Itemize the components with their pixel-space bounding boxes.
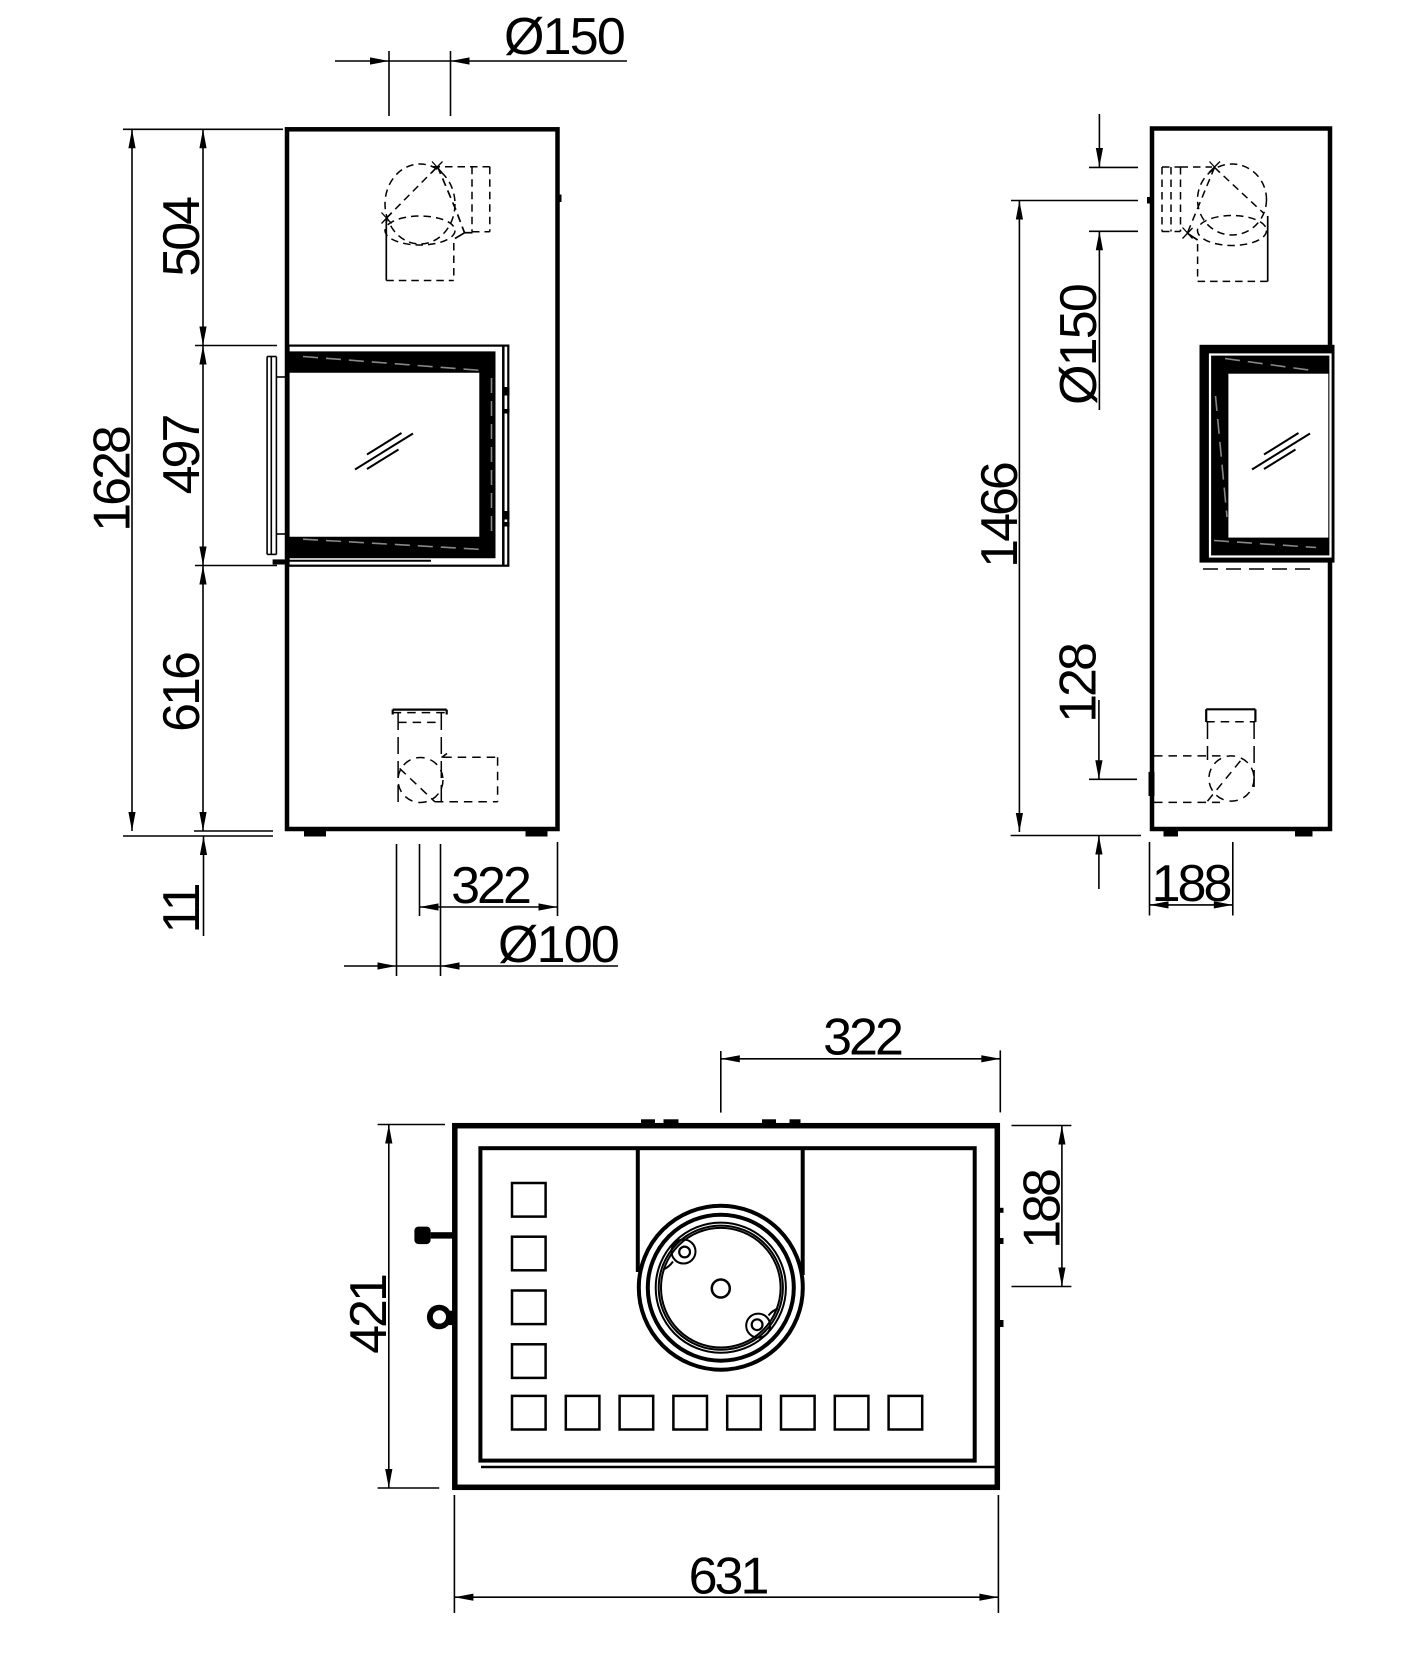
svg-text:1628: 1628	[84, 427, 142, 532]
svg-text:322: 322	[451, 857, 530, 915]
svg-text:188: 188	[1152, 855, 1231, 913]
svg-text:128: 128	[1050, 644, 1108, 723]
svg-text:631: 631	[689, 1548, 768, 1606]
svg-text:11: 11	[153, 884, 211, 933]
svg-text:616: 616	[153, 653, 211, 732]
svg-text:Ø100: Ø100	[498, 916, 618, 974]
svg-text:504: 504	[153, 197, 211, 277]
svg-text:Ø150: Ø150	[504, 8, 624, 66]
svg-text:188: 188	[1014, 1170, 1072, 1249]
svg-text:497: 497	[153, 416, 211, 495]
svg-text:1466: 1466	[971, 463, 1029, 568]
svg-text:Ø150: Ø150	[1050, 285, 1108, 405]
svg-text:322: 322	[823, 1009, 902, 1067]
svg-text:421: 421	[340, 1275, 398, 1354]
